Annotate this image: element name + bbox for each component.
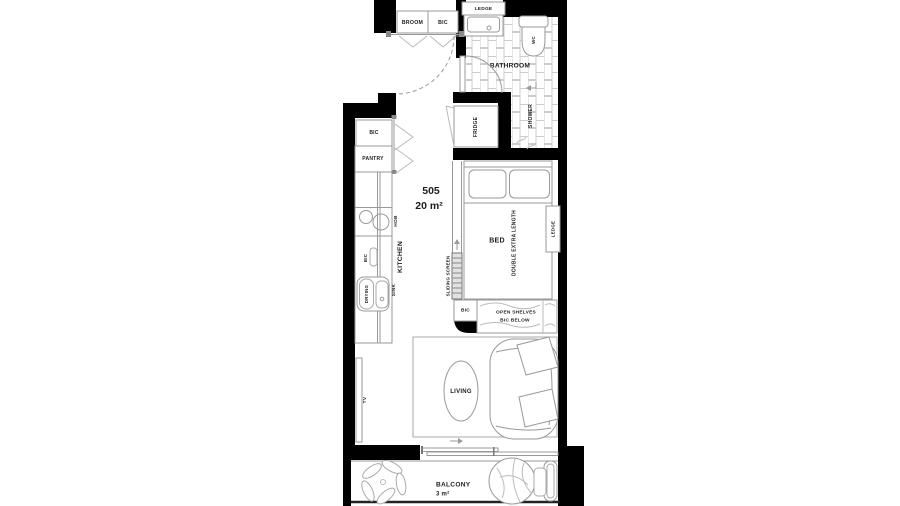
balcony-label: BALCONY	[436, 482, 471, 489]
drying-label: DRYING	[364, 284, 369, 303]
wall-tab	[392, 115, 397, 119]
balcony-table	[489, 458, 535, 504]
hob-label: HOB	[393, 215, 399, 227]
kitchen-label: KITCHEN	[397, 241, 404, 273]
shower-label: SHOWER	[528, 104, 534, 128]
unit-area: 20 m²	[415, 200, 443, 212]
wall-bottom-right-block	[558, 446, 584, 506]
balcony: BALCONY 3 m²	[351, 458, 560, 506]
pillow	[469, 170, 506, 198]
fridge-door-swing	[446, 106, 454, 146]
living-label: LIVING	[450, 389, 472, 395]
entry: BROOM BIC	[386, 11, 464, 94]
bathroom-ledge-label: LEDGE	[475, 6, 493, 12]
wall-living-bottom	[343, 445, 420, 460]
living-area: LIVING TV	[356, 337, 558, 444]
bed-area: BED DOUBLE EXTRA LENGTH LEDGE	[464, 161, 560, 299]
balcony-door	[421, 446, 558, 456]
unit-info: 505 20 m²	[415, 185, 443, 212]
open-shelves-label-1: OPEN SHELVES	[496, 310, 537, 316]
wall-bed-head	[453, 148, 559, 160]
bic-shelf-label: BIC	[461, 308, 470, 314]
pillow	[510, 170, 550, 198]
wall-tab	[386, 31, 391, 37]
counter-bic-unit	[370, 248, 377, 266]
bic-entry-label: BIC	[438, 20, 448, 26]
balcony-chair	[534, 461, 557, 501]
counter-bic-label: BIC	[363, 253, 368, 262]
screen-panel	[452, 253, 462, 299]
bathroom-door-leaf	[460, 56, 465, 92]
tv	[356, 358, 362, 442]
sink-bowl	[376, 281, 388, 308]
wall-bathroom-bottom	[453, 92, 511, 103]
sliding-door-rail	[422, 448, 498, 452]
fridge-label: FRIDGE	[473, 116, 479, 137]
bed-label: BED	[489, 238, 505, 245]
fridge: FRIDGE	[446, 106, 498, 147]
wall-left	[343, 103, 355, 448]
cupboard-door-swing	[399, 36, 456, 47]
tv-label: TV	[362, 396, 368, 403]
wc-cistern	[519, 16, 548, 27]
wall-balcony-left	[343, 445, 351, 506]
sink-label: SINK	[391, 283, 397, 296]
bathroom-label: BATHROOM	[490, 63, 531, 70]
plant	[359, 458, 407, 506]
wall-top-left	[374, 0, 396, 33]
open-shelves-label-2: BIC BELOW	[500, 318, 530, 324]
kitchen-bic-label: BIC	[369, 130, 379, 136]
floor-plan: BROOM BIC LEDGE WC BATHROOM SHOWER FRIDG…	[0, 0, 900, 506]
pantry-label: PANTRY	[362, 156, 384, 162]
bed-ledge-label: LEDGE	[551, 221, 556, 237]
unit-number: 505	[422, 185, 440, 197]
wall-top-right	[503, 0, 567, 17]
floor-plan-canvas: BROOM BIC LEDGE WC BATHROOM SHOWER FRIDG…	[0, 0, 900, 506]
sliding-screen: SLIDING SCREEN	[446, 161, 463, 299]
balcony-area-label: 3 m²	[436, 491, 449, 498]
shower-floor-tiles	[511, 93, 560, 151]
rail-end-stop	[421, 446, 423, 454]
sliding-door-rail	[427, 452, 558, 456]
cupboard-door-swing	[395, 124, 413, 174]
bed-size-label: DOUBLE EXTRA LENGTH	[512, 210, 518, 276]
screen-arrowhead	[454, 239, 460, 244]
rail-mid-stop	[493, 447, 495, 456]
wall-fridge-shower-divider	[498, 102, 511, 150]
flow-arrowhead	[458, 438, 463, 444]
sliding-screen-label: SLIDING SCREEN	[446, 256, 451, 297]
kitchen: BIC PANTRY HOB BIC DRYING SINK KITCHEN	[355, 115, 413, 343]
wc-label: WC	[531, 36, 536, 44]
basin	[468, 17, 500, 32]
wall-entry-stub	[378, 93, 396, 104]
broom-label: BROOM	[402, 20, 423, 26]
